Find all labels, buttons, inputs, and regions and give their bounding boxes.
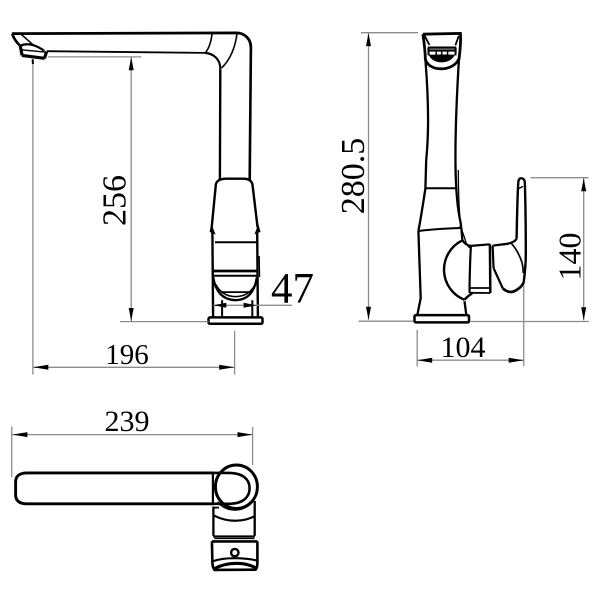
svg-text:140: 140 [552,233,588,281]
svg-text:47: 47 [271,266,314,313]
svg-text:196: 196 [105,339,149,371]
svg-text:239: 239 [105,405,150,438]
svg-text:256: 256 [96,175,133,226]
svg-text:280.5: 280.5 [335,138,372,215]
svg-text:104: 104 [441,331,486,364]
